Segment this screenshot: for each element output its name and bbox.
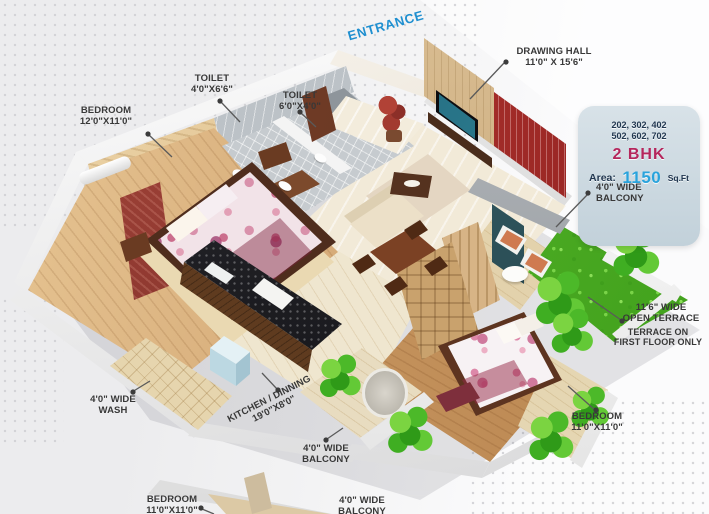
unit-info-badge: 202, 302, 402 502, 602, 702 2 BHK Area: … xyxy=(578,106,700,246)
label-balcony-right: 4'0" WIDE BALCONY xyxy=(596,183,672,204)
room-dims: 4'0"X6'6" xyxy=(180,85,244,96)
label-line: WASH xyxy=(82,406,144,417)
tray xyxy=(404,180,420,187)
room-dims: 11'0" X 15'6" xyxy=(504,58,604,69)
balcony-table xyxy=(502,266,528,282)
unit-numbers-line1: 202, 302, 402 xyxy=(611,120,666,130)
floor-plan-image: 202, 302, 402 502, 602, 702 2 BHK Area: … xyxy=(0,0,709,514)
room-dims: 11'0"X11'0" xyxy=(556,423,638,434)
label-terrace-note: TERRACE ON FIRST FLOOR ONLY xyxy=(608,327,708,347)
bhk-type: 2 BHK xyxy=(578,146,700,164)
plant-pot xyxy=(386,130,402,142)
unit-numbers-line2: 502, 602, 702 xyxy=(611,131,666,141)
label-wash: 4'0" WIDE WASH xyxy=(82,395,144,416)
room-dims: 11'0"X11'0" xyxy=(134,506,210,514)
label-bedroom-1: BEDROOM 12'0"X11'0" xyxy=(58,106,154,127)
label-balcony-middle: 4'0" WIDE BALCONY xyxy=(296,444,356,465)
label-line: BALCONY xyxy=(330,507,394,514)
plant xyxy=(386,404,434,456)
unit-numbers: 202, 302, 402 502, 602, 702 xyxy=(578,120,700,143)
label-open-terrace: 11'6" WIDE OPEN TERRACE xyxy=(616,303,706,324)
label-line: BALCONY xyxy=(596,194,672,205)
plant xyxy=(550,306,594,356)
label-line: TERRACE ON xyxy=(608,327,708,337)
label-balcony-bottom: 4'0" WIDE BALCONY xyxy=(330,496,394,514)
plant xyxy=(318,352,362,400)
room-dims: 12'0"X11'0" xyxy=(58,117,154,128)
label-toilet-2: TOILET 6'0"X4'0" xyxy=(270,91,330,112)
label-line: FIRST FLOOR ONLY xyxy=(608,337,708,347)
label-toilet-1: TOILET 4'0"X6'6" xyxy=(180,74,244,95)
label-line: OPEN TERRACE xyxy=(616,314,706,325)
label-bedroom-2: BEDROOM 11'0"X11'0" xyxy=(556,412,638,433)
label-drawing-hall: DRAWING HALL 11'0" X 15'6" xyxy=(504,47,604,68)
label-bedroom-lower-floor: BEDROOM 11'0"X11'0" xyxy=(134,495,210,514)
area-unit: Sq.Ft xyxy=(668,173,689,183)
room-dims: 6'0"X4'0" xyxy=(270,102,330,113)
label-line: BALCONY xyxy=(296,455,356,466)
